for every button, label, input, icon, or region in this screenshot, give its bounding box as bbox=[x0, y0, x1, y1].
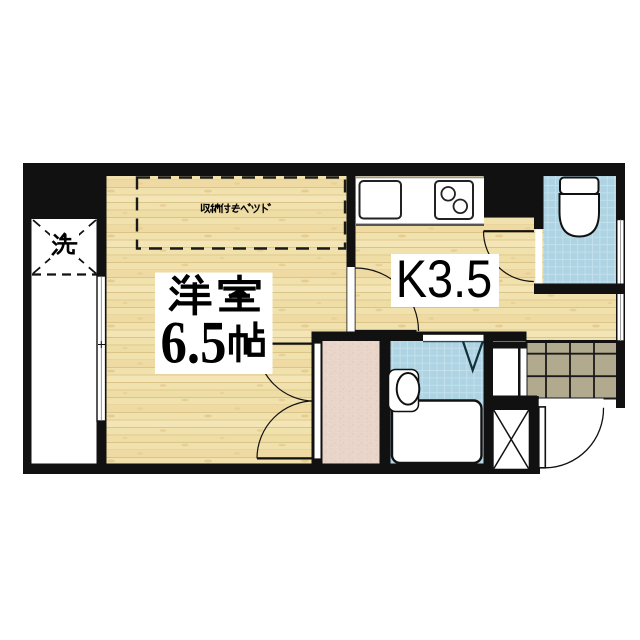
svg-text:6.5: 6.5 bbox=[161, 310, 227, 376]
svg-text:K3.5: K3.5 bbox=[396, 249, 492, 308]
